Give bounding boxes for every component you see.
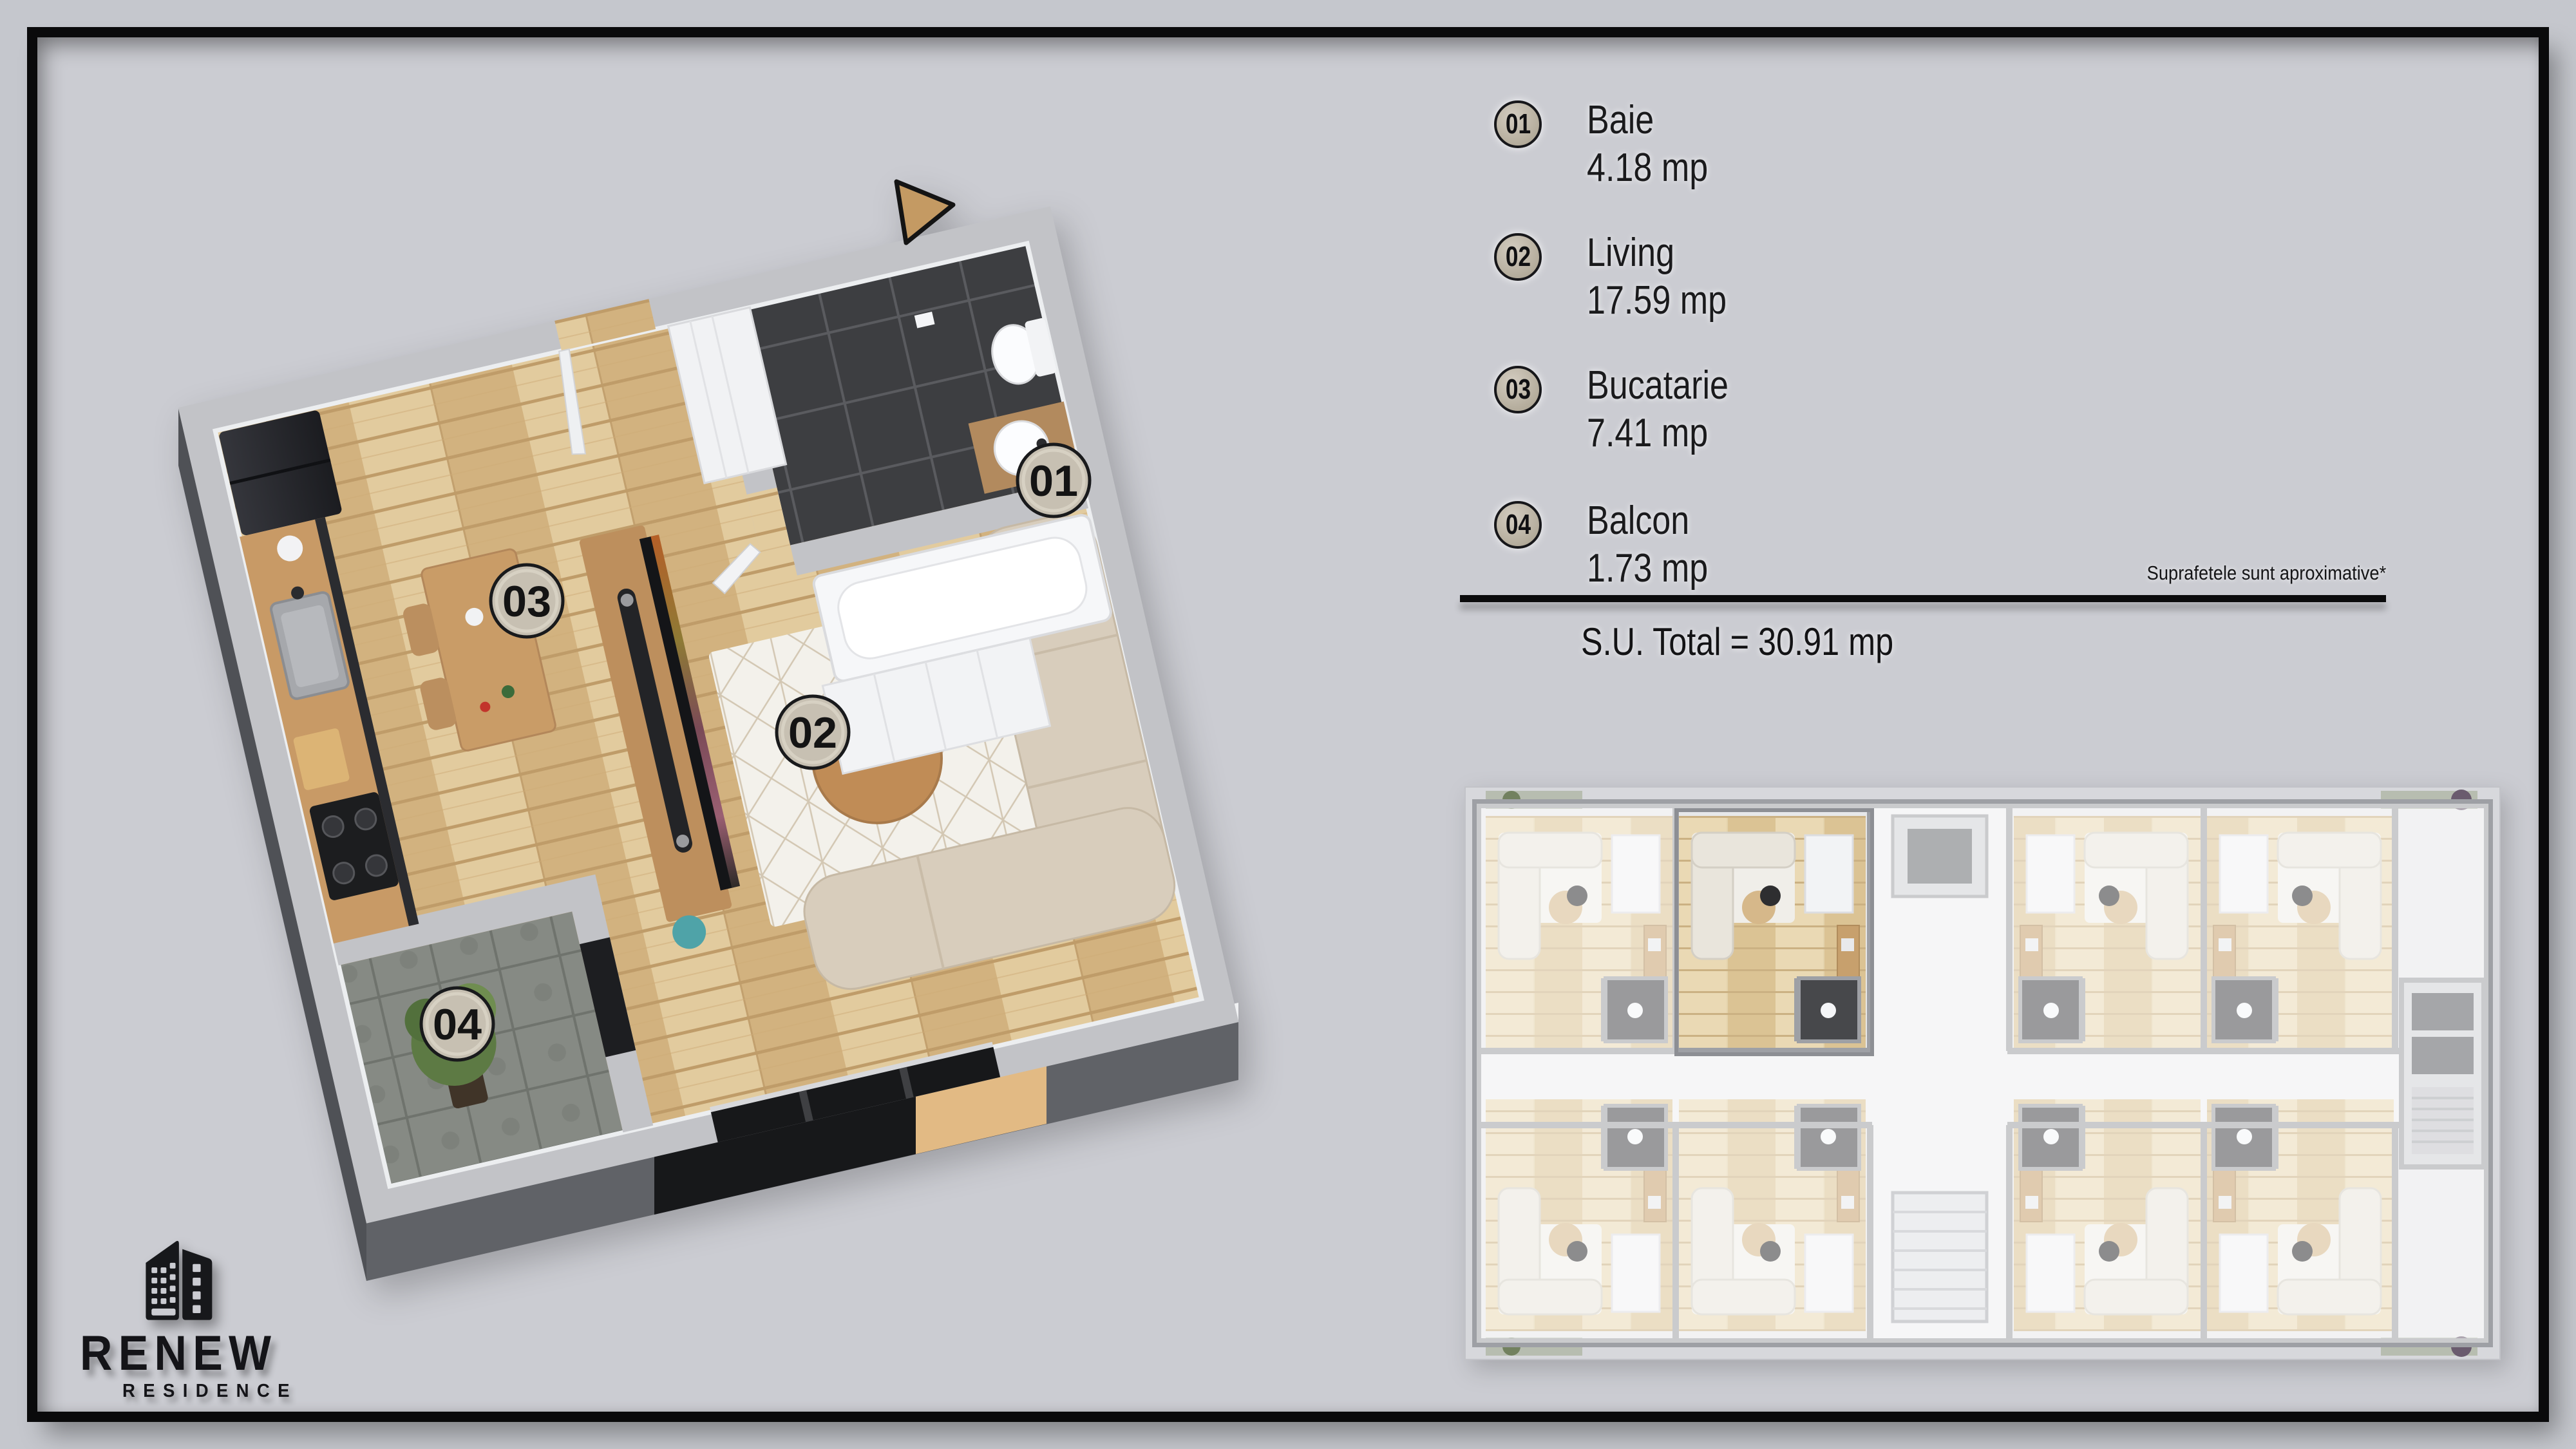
plan-badge-04: 04 bbox=[421, 988, 493, 1060]
poster-root: 01 02 03 04 01 Baie 4.18 mp 02 bbox=[0, 0, 2576, 1449]
floor-overview-plan bbox=[1460, 768, 2505, 1379]
plan-badge-01: 01 bbox=[1018, 444, 1090, 516]
legend-label: Living bbox=[1587, 229, 1754, 277]
unit-2-highlighted bbox=[1679, 816, 1866, 1048]
legend-label: Balcon bbox=[1587, 497, 1731, 545]
legend-area: 7.41 mp bbox=[1587, 410, 1756, 457]
approx-note: Suprafetele sunt aproximative* bbox=[1460, 562, 2386, 585]
legend-divider bbox=[1460, 595, 2386, 602]
svg-text:02: 02 bbox=[788, 708, 837, 757]
svg-text:04: 04 bbox=[433, 1000, 482, 1049]
brand-logo: RENEW RESIDENCE bbox=[76, 1222, 385, 1416]
legend-row-baie: 01 Baie 4.18 mp bbox=[1475, 97, 1731, 192]
apartment-3d-plan: 01 02 03 04 bbox=[97, 167, 1320, 1288]
total-area: S.U. Total = 30.91 mp bbox=[1581, 620, 1953, 664]
faded-units-overlay bbox=[1477, 804, 2488, 1343]
legend-badge-01: 01 bbox=[1494, 100, 1542, 148]
legend-badge-02: 02 bbox=[1494, 233, 1542, 281]
logo-title: RENEW bbox=[80, 1325, 277, 1381]
svg-text:01: 01 bbox=[1029, 457, 1078, 506]
svg-text:03: 03 bbox=[502, 577, 551, 626]
legend-badge-04: 04 bbox=[1494, 501, 1542, 549]
legend-label: Bucatarie bbox=[1587, 362, 1756, 410]
plan-badge-03: 03 bbox=[491, 565, 563, 637]
legend-area: 17.59 mp bbox=[1587, 277, 1754, 325]
plan-badge-02: 02 bbox=[777, 696, 849, 768]
legend-area: 4.18 mp bbox=[1587, 144, 1731, 192]
legend-row-living: 02 Living 17.59 mp bbox=[1475, 229, 1754, 325]
legend-badge-03: 03 bbox=[1494, 366, 1542, 413]
legend-label: Baie bbox=[1587, 97, 1731, 144]
buildings-icon bbox=[138, 1231, 219, 1324]
legend-row-bucatarie: 03 Bucatarie 7.41 mp bbox=[1475, 362, 1756, 457]
logo-subtitle: RESIDENCE bbox=[122, 1381, 298, 1402]
